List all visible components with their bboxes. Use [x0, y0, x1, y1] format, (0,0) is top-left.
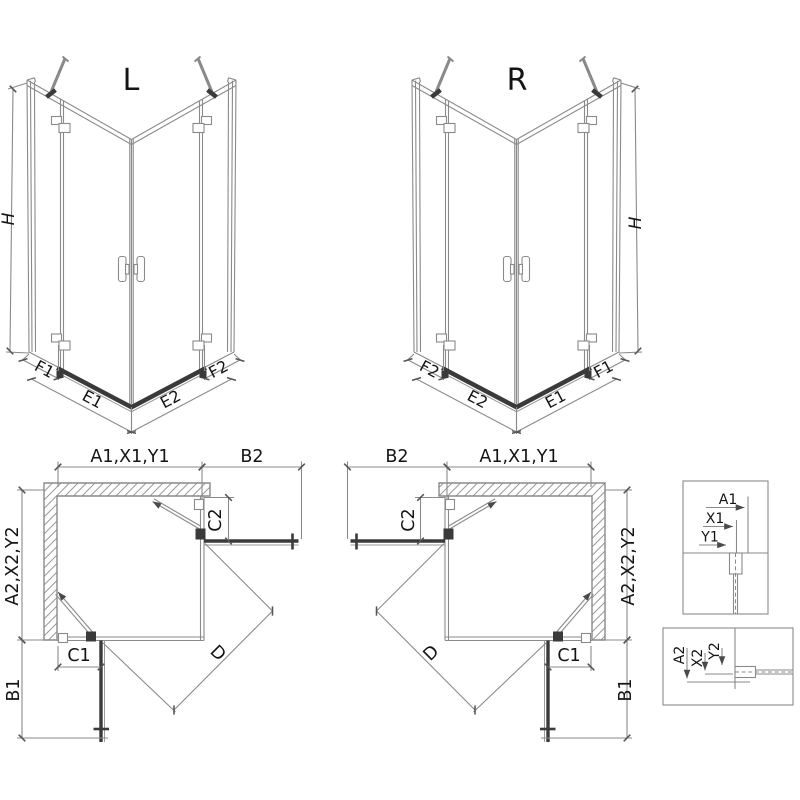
plan-right-wall-hatch — [439, 483, 605, 640]
detail-bottom-frame — [663, 628, 793, 705]
dim-label-c1-right: C1 — [557, 646, 580, 666]
dim-label-c1-left: C1 — [67, 646, 90, 666]
detail-label-y2: Y2 — [707, 642, 723, 660]
view-title-left: L — [123, 63, 140, 98]
drawing-canvas: A1 X1 Y1 A2 X2 Y2 L R H H F1 E1 E2 F2 F2… — [0, 0, 800, 800]
detail-label-x2: X2 — [690, 649, 706, 668]
dim-label-f1: F1 — [32, 356, 58, 382]
dim-label-d-right: D — [420, 642, 444, 666]
view-title-right: R — [507, 63, 528, 98]
plan-view-right — [348, 462, 633, 743]
dim-label-h-left: H — [0, 212, 19, 225]
dim-label-d-left: D — [206, 642, 230, 666]
dim-label-f2-right: F2 — [417, 356, 443, 382]
dim-label-c2-left: C2 — [206, 508, 226, 531]
profile-detail-bottom: A2 X2 Y2 — [663, 628, 793, 705]
dim-label-f1-right: F1 — [590, 356, 616, 382]
profile-detail-top: A1 X1 Y1 — [683, 481, 768, 614]
detail-label-x1: X1 — [706, 511, 725, 527]
plan-left-wall-hatch — [44, 483, 210, 640]
dim-label-f2: F2 — [205, 356, 231, 382]
isometric-labels: L R H H F1 E1 E2 F2 F2 E2 E1 F1 — [0, 63, 646, 412]
dim-label-h-right: H — [626, 216, 646, 229]
dim-label-a2x2y2-right: A2,X2,Y2 — [619, 526, 639, 605]
dim-label-c2-right: C2 — [399, 508, 419, 531]
dim-label-b2-left: B2 — [240, 447, 263, 467]
dim-label-b1-left: B1 — [4, 678, 24, 701]
dim-label-a1x1y1-left: A1,X1,Y1 — [90, 447, 169, 467]
detail-label-a1: A1 — [719, 492, 737, 508]
dim-label-a2x2y2-left: A2,X2,Y2 — [3, 526, 23, 605]
dim-label-b1-right: B1 — [616, 678, 636, 701]
detail-label-y1: Y1 — [700, 530, 718, 546]
dim-label-a1x1y1-right: A1,X1,Y1 — [479, 447, 558, 467]
technical-drawing-page: A1 X1 Y1 A2 X2 Y2 L R H H F1 E1 E2 F2 F2… — [0, 0, 800, 800]
detail-label-a2: A2 — [672, 646, 688, 664]
dim-label-b2-right: B2 — [385, 447, 408, 467]
plan-view-left — [17, 462, 302, 743]
